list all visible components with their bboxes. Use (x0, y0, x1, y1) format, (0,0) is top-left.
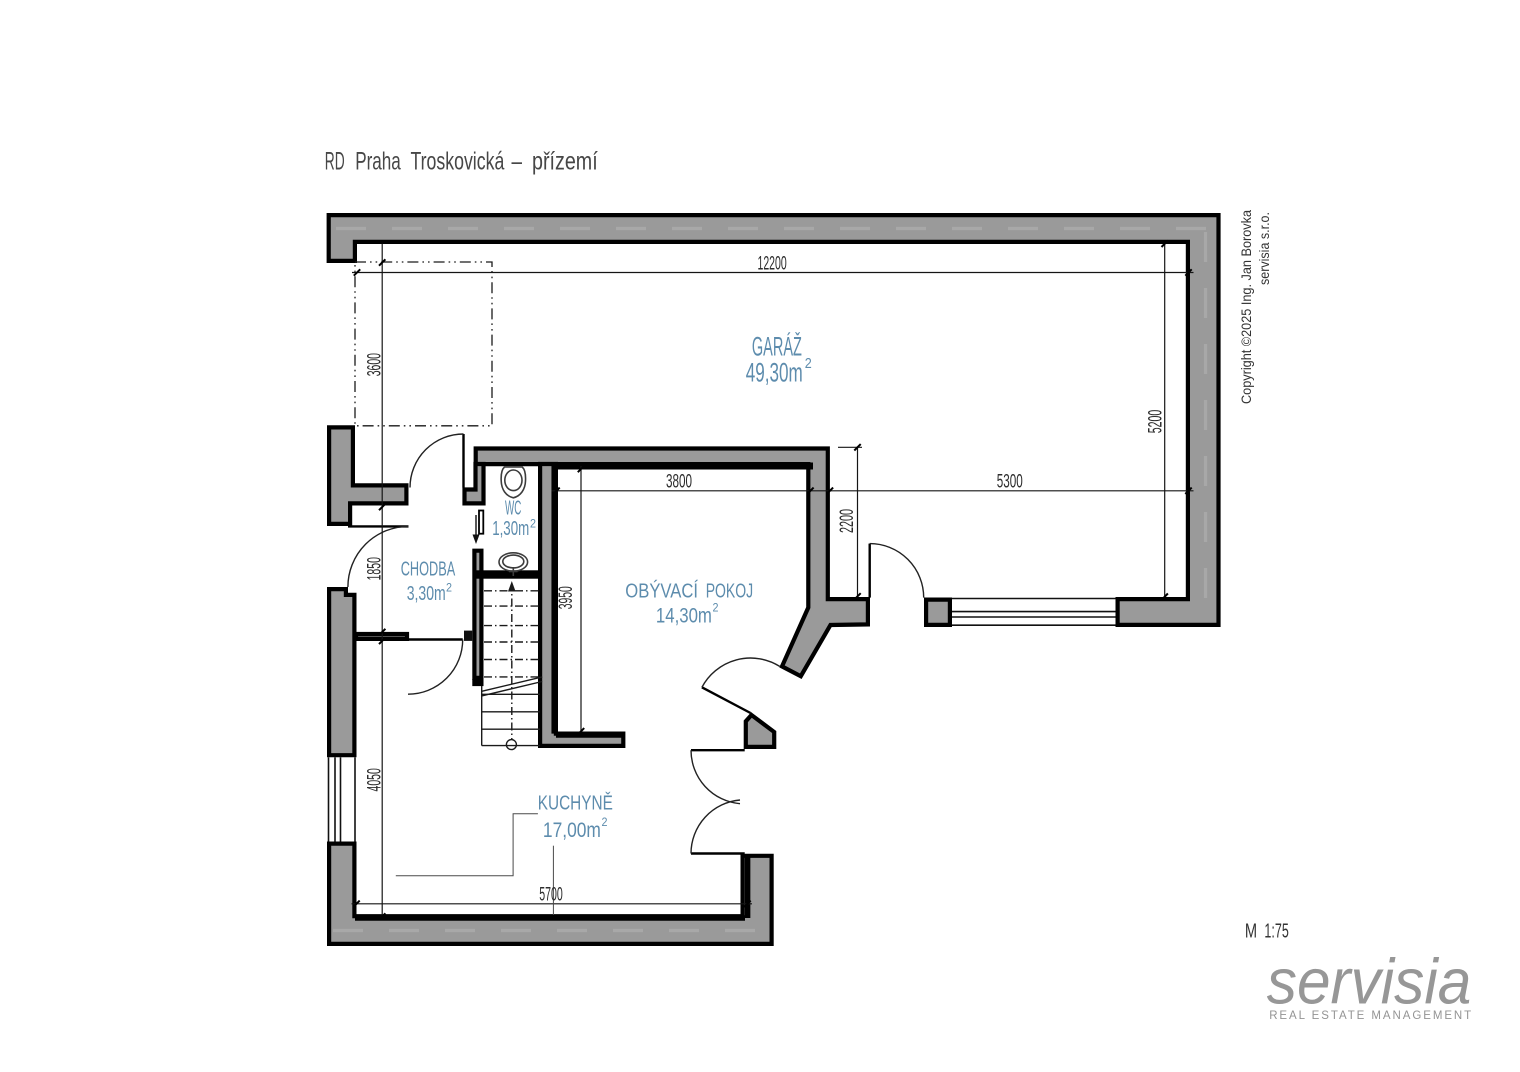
svg-text:Praha: Praha (355, 148, 401, 176)
svg-text:5300: 5300 (997, 470, 1023, 492)
svg-text:3600: 3600 (363, 353, 385, 376)
svg-text:přízemí: přízemí (532, 148, 598, 176)
svg-text:1,30m: 1,30m (492, 518, 529, 540)
svg-text:WC: WC (505, 497, 521, 519)
svg-text:49,30m: 49,30m (746, 358, 803, 388)
svg-text:2: 2 (446, 581, 452, 595)
svg-text:3800: 3800 (666, 470, 692, 492)
svg-text:3,30m: 3,30m (407, 583, 446, 605)
svg-text:M: M (1245, 920, 1257, 942)
svg-text:POKOJ: POKOJ (706, 581, 754, 603)
svg-text:1850: 1850 (364, 557, 386, 580)
svg-text:2: 2 (805, 355, 812, 372)
svg-text:servisia: servisia (1267, 945, 1472, 1017)
svg-text:3950: 3950 (555, 586, 577, 609)
svg-text:KUCHYNĚ: KUCHYNĚ (538, 792, 613, 815)
svg-text:2: 2 (530, 517, 536, 531)
svg-text:Troskovická: Troskovická (411, 148, 505, 176)
svg-text:14,30m: 14,30m (656, 604, 712, 627)
svg-text:12200: 12200 (758, 253, 787, 275)
svg-text:2: 2 (713, 601, 719, 615)
svg-text:Copyright ©2025 Ing. Jan Borov: Copyright ©2025 Ing. Jan Borovka (1238, 210, 1254, 404)
svg-text:CHODBA: CHODBA (401, 559, 456, 581)
svg-text:5700: 5700 (539, 883, 563, 905)
svg-text:17,00m: 17,00m (543, 819, 601, 842)
svg-text:2: 2 (602, 815, 608, 829)
svg-text:2200: 2200 (836, 509, 858, 533)
svg-text:OBÝVACÍ: OBÝVACÍ (625, 580, 698, 603)
svg-text:5200: 5200 (1145, 410, 1167, 434)
svg-text:–: – (512, 148, 523, 176)
svg-text:servisia s.r.o.: servisia s.r.o. (1256, 212, 1272, 285)
svg-text:4050: 4050 (364, 768, 386, 791)
svg-text:1:75: 1:75 (1264, 920, 1288, 942)
svg-text:RD: RD (325, 148, 345, 176)
